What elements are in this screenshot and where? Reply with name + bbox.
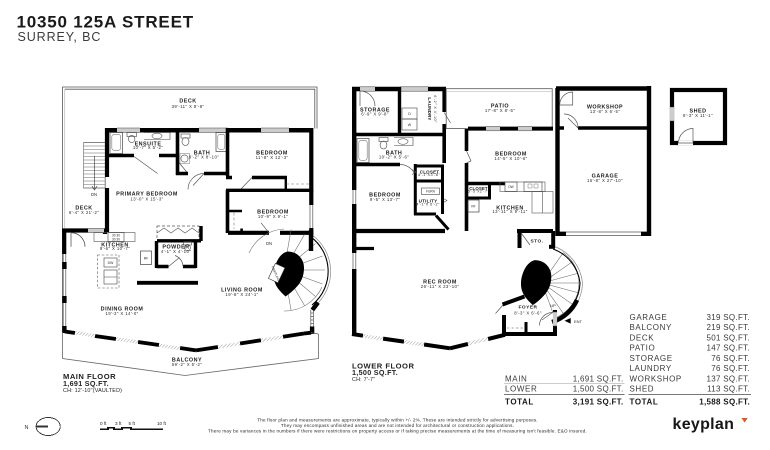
svg-text:6'-2" X 4'-10": 6'-2" X 4'-10" [433,95,437,123]
svg-text:0 ft: 0 ft [100,421,107,426]
svg-text:19'-8" X 24'-1": 19'-8" X 24'-1" [225,292,258,297]
svg-text:SURREY, BC: SURREY, BC [18,30,102,44]
svg-text:FURN: FURN [426,190,436,194]
svg-text:113 SQ.FT.: 113 SQ.FT. [707,385,750,394]
svg-text:10'-9" X 9'-1": 10'-9" X 9'-1" [258,214,288,219]
svg-text:39'-11" X 8'-8": 39'-11" X 8'-8" [172,104,205,109]
svg-text:6'-4" X 21'-2": 6'-4" X 21'-2" [69,210,99,215]
svg-text:9'-5" X 13'-7": 9'-5" X 13'-7" [370,197,400,202]
svg-text:1,500 SQ.FT.: 1,500 SQ.FT. [573,385,624,394]
svg-text:1,691 SQ.FT.: 1,691 SQ.FT. [573,374,624,383]
svg-text:TOTAL: TOTAL [630,398,659,407]
svg-text:WORKSHOP: WORKSHOP [630,374,682,383]
svg-text:STORAGE: STORAGE [630,354,673,363]
svg-text:RF: RF [471,205,475,209]
svg-text:10'-7" X 5'-2": 10'-7" X 5'-2" [133,145,163,150]
svg-text:D: D [408,112,411,116]
svg-text:8'-3" X 6'-6": 8'-3" X 6'-6" [514,311,542,316]
svg-text:1,588 SQ.FT.: 1,588 SQ.FT. [699,398,750,407]
svg-text:DN: DN [91,192,97,197]
svg-text:14'-5" X 10'-6": 14'-5" X 10'-6" [494,156,527,161]
svg-text:11'-8" X 12'-3": 11'-8" X 12'-3" [256,155,289,160]
svg-text:319 SQ.FT.: 319 SQ.FT. [707,313,750,322]
svg-text:9'-6" X 10'-7": 9'-6" X 10'-7" [100,246,130,251]
svg-text:137 SQ.FT.: 137 SQ.FT. [707,374,750,383]
svg-text:LAUNDRY: LAUNDRY [427,97,432,120]
svg-text:DW: DW [508,185,513,189]
svg-text:13'-11" X 9'-11": 13'-11" X 9'-11" [492,209,527,214]
svg-text:STO.: STO. [530,239,543,245]
svg-text:5 ft: 5 ft [129,421,136,426]
svg-text:10 ft: 10 ft [157,421,167,426]
svg-text:The floor plan and measurement: The floor plan and measurements are appr… [257,418,538,423]
svg-text:19'-3" X 14'-0": 19'-3" X 14'-0" [105,311,138,316]
svg-text:DN: DN [266,241,272,246]
svg-text:TOTAL: TOTAL [505,398,534,407]
svg-text:76 SQ.FT.: 76 SQ.FT. [711,354,750,363]
svg-text:9'-2" X 8'-10": 9'-2" X 8'-10" [189,155,219,160]
svg-text:10'-2" X 5'-6": 10'-2" X 5'-6" [379,155,409,160]
svg-text:4'-1"X 6'-2": 4'-1"X 6'-2" [416,203,440,207]
svg-text:MAIN: MAIN [505,374,527,383]
svg-text:SHED: SHED [630,385,655,394]
svg-text:5'-5"X2'-7": 5'-5"X2'-7" [468,190,489,194]
svg-text:1,500 SQ.FT.: 1,500 SQ.FT. [352,368,398,377]
svg-text:59'-2" X 5'-2": 59'-2" X 5'-2" [172,362,202,367]
svg-text:13'-8" X 6'-5": 13'-8" X 6'-5" [590,109,620,114]
svg-text:4'-1"X3'-8": 4'-1"X3'-8" [418,173,440,177]
svg-text:147 SQ.FT.: 147 SQ.FT. [707,344,750,353]
svg-text:LOWER: LOWER [505,385,537,394]
svg-text:501 SQ.FT.: 501 SQ.FT. [707,333,750,342]
svg-text:CH: 12'-10"(VAULTED): CH: 12'-10"(VAULTED) [63,388,122,394]
svg-text:15'-8" X 27'-10": 15'-8" X 27'-10" [587,178,623,183]
svg-text:76 SQ.FT.: 76 SQ.FT. [711,364,750,373]
svg-text:10350 125A STREET: 10350 125A STREET [17,13,194,32]
svg-text:W: W [408,123,412,127]
svg-text:ENT: ENT [574,319,583,324]
svg-text:1,691 SQ.FT.: 1,691 SQ.FT. [63,379,109,388]
svg-text:RF: RF [144,257,149,261]
svg-text:3 ft: 3 ft [115,421,122,426]
svg-text:LAUNDRY: LAUNDRY [630,364,672,373]
svg-text:30 30: 30 30 [112,237,120,241]
svg-text:N: N [25,425,29,431]
svg-text:CH: 7'-7": CH: 7'-7" [352,377,375,383]
svg-text:keyplan: keyplan [673,416,735,433]
svg-text:13'-0" X 15'-3": 13'-0" X 15'-3" [130,197,163,202]
svg-text:219 SQ.FT.: 219 SQ.FT. [707,323,750,332]
svg-text:4'-1" X 4'-10": 4'-1" X 4'-10" [161,249,191,254]
svg-text:There may be variances in the: There may be variances in the numbers if… [208,429,587,434]
svg-text:GARAGE: GARAGE [630,313,668,322]
svg-text:They may encompass unfinished: They may encompass unfinished areas and … [281,423,514,428]
svg-text:3,191 SQ.FT.: 3,191 SQ.FT. [573,398,624,407]
svg-text:DECK: DECK [630,333,655,342]
svg-text:26'-11" X 23'-10": 26'-11" X 23'-10" [421,284,459,289]
svg-text:6'-9" X 9'-8": 6'-9" X 9'-8" [361,112,389,117]
svg-text:DW: DW [108,261,114,265]
svg-text:BALCONY: BALCONY [630,323,672,332]
svg-text:PATIO: PATIO [630,344,656,353]
svg-text:8'-3" X 11'-1": 8'-3" X 11'-1" [683,113,713,118]
svg-text:UP: UP [550,303,556,308]
svg-text:17'-8" X 8'-5": 17'-8" X 8'-5" [485,108,515,113]
